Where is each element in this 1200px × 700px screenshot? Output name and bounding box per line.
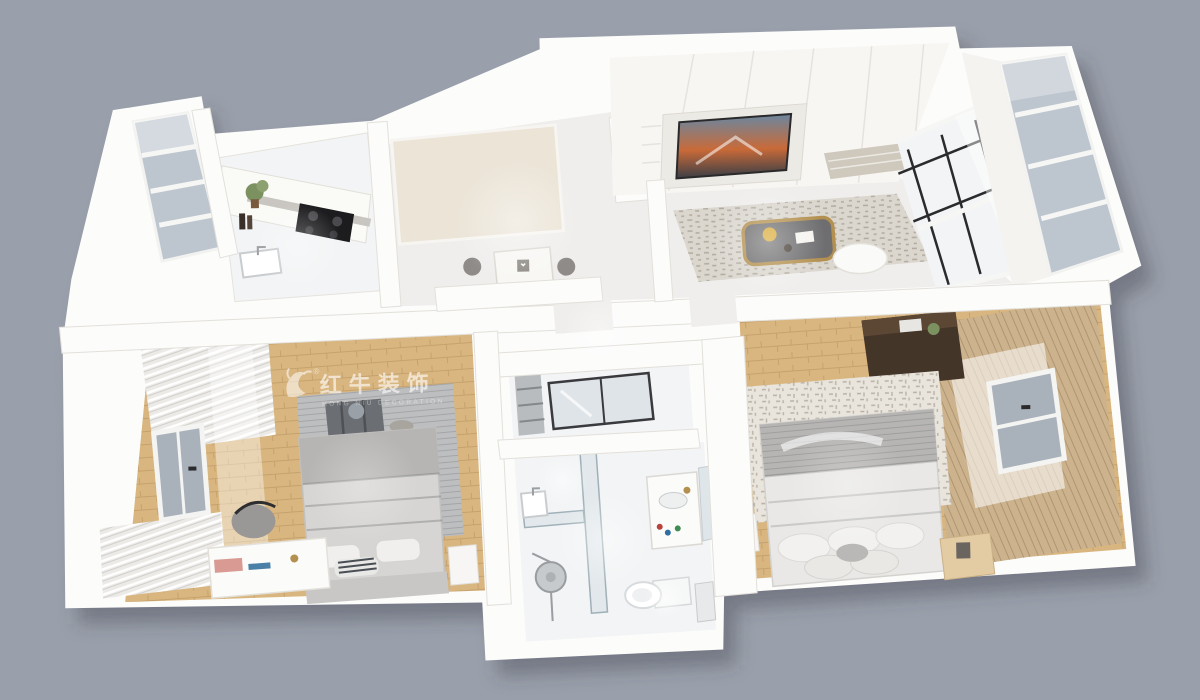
window-handle xyxy=(1021,405,1030,409)
bottle xyxy=(239,213,245,229)
bedroom-right xyxy=(721,289,1127,587)
vanity-sink xyxy=(659,492,687,509)
left-window xyxy=(154,425,209,520)
pillow xyxy=(375,538,420,563)
ottoman xyxy=(833,243,888,274)
window-handle xyxy=(188,466,196,470)
desk xyxy=(208,538,330,599)
bath-cabinet xyxy=(695,582,716,622)
dresser-device xyxy=(899,319,922,333)
floorplan-render: ® 红牛装饰 HONG NIU DECORATION xyxy=(0,0,1200,700)
vanity xyxy=(647,472,703,549)
watermark-brand: 红牛装饰 xyxy=(319,370,436,397)
floorplan-canvas: ® 红牛装饰 HONG NIU DECORATION xyxy=(0,0,1200,700)
nightstand xyxy=(448,545,479,586)
glass-partition xyxy=(549,373,654,429)
pink-book xyxy=(214,558,243,573)
tv xyxy=(675,114,792,178)
right-window xyxy=(989,370,1065,472)
nightstand-right xyxy=(940,533,995,580)
utility-shelving xyxy=(514,371,544,436)
bottle xyxy=(247,215,252,229)
nightstand-decor xyxy=(956,542,970,558)
door-opening xyxy=(689,291,738,327)
bedroom-left xyxy=(96,327,486,609)
